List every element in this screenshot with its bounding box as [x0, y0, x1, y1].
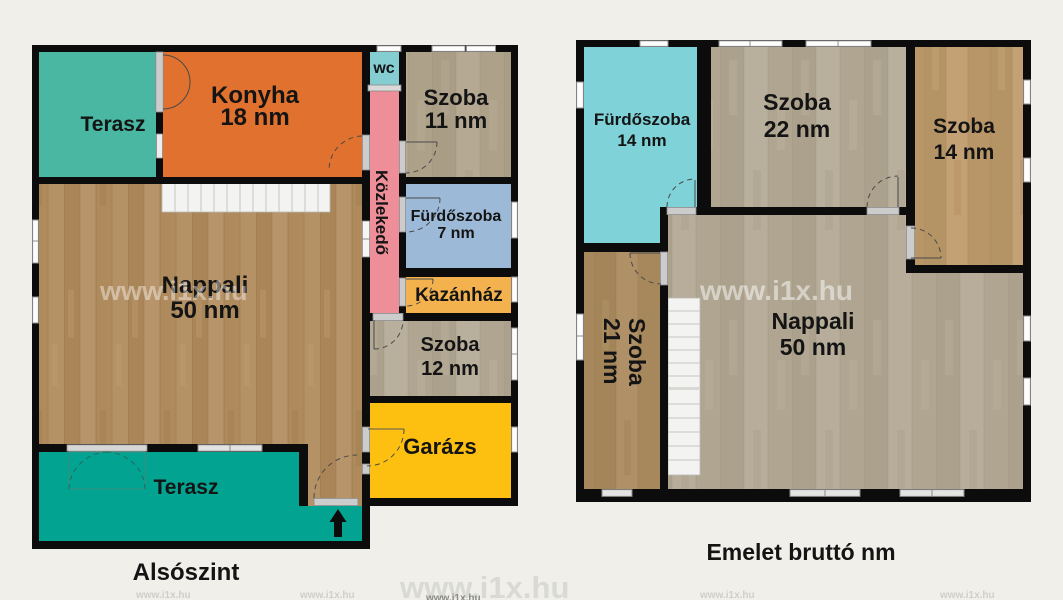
svg-text:22 nm: 22 nm	[764, 116, 830, 142]
svg-text:Emelet bruttó nm: Emelet bruttó nm	[706, 539, 895, 565]
svg-text:Szoba: Szoba	[933, 115, 995, 138]
svg-text:www.i1x.hu: www.i1x.hu	[135, 590, 191, 600]
svg-text:12 nm: 12 nm	[421, 358, 479, 380]
svg-text:18 nm: 18 nm	[220, 104, 289, 131]
svg-text:11 nm: 11 nm	[425, 108, 487, 133]
svg-text:21 nm: 21 nm	[599, 318, 625, 384]
svg-text:Szoba: Szoba	[424, 85, 490, 110]
svg-text:Terasz: Terasz	[154, 476, 219, 499]
svg-text:Garázs: Garázs	[403, 434, 476, 459]
svg-text:www.i1x.hu: www.i1x.hu	[399, 570, 569, 600]
svg-text:www.i1x.hu: www.i1x.hu	[939, 590, 995, 600]
svg-text:Alsószint: Alsószint	[133, 559, 240, 586]
svg-text:www.i1x.hu: www.i1x.hu	[699, 590, 755, 600]
svg-text:Kazánház: Kazánház	[415, 285, 503, 306]
svg-text:Szoba: Szoba	[421, 334, 481, 356]
svg-text:Fürdőszoba: Fürdőszoba	[411, 208, 502, 225]
svg-text:wc: wc	[372, 60, 394, 77]
svg-text:www.i1x.hu: www.i1x.hu	[99, 276, 248, 306]
svg-text:www.i1x.hu: www.i1x.hu	[425, 593, 481, 600]
svg-text:Közlekedő: Közlekedő	[372, 170, 391, 255]
svg-text:Szoba: Szoba	[624, 318, 650, 386]
svg-text:14 nm: 14 nm	[934, 141, 995, 164]
svg-text:Szoba: Szoba	[763, 89, 831, 115]
svg-text:www.i1x.hu: www.i1x.hu	[699, 275, 853, 306]
svg-text:Fürdőszoba: Fürdőszoba	[594, 110, 691, 129]
svg-text:Nappali: Nappali	[771, 308, 854, 334]
svg-text:Terasz: Terasz	[81, 113, 146, 136]
svg-text:14 nm: 14 nm	[617, 131, 666, 150]
svg-text:50 nm: 50 nm	[780, 334, 846, 360]
svg-text:7 nm: 7 nm	[437, 225, 474, 242]
svg-text:www.i1x.hu: www.i1x.hu	[299, 590, 355, 600]
